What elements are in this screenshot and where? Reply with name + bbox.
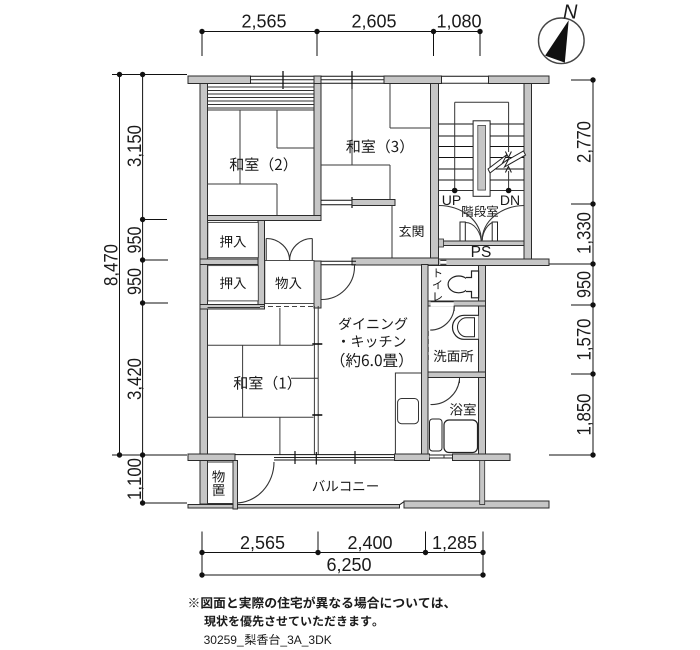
svg-text:950: 950 xyxy=(575,271,596,298)
svg-text:1,285: 1,285 xyxy=(432,533,477,553)
svg-text:3,420: 3,420 xyxy=(125,358,146,400)
svg-text:950: 950 xyxy=(125,227,146,254)
svg-text:950: 950 xyxy=(125,268,146,295)
svg-text:1,080: 1,080 xyxy=(436,12,481,32)
svg-text:2,400: 2,400 xyxy=(347,533,392,553)
svg-text:1,330: 1,330 xyxy=(575,212,596,254)
svg-text:2,565: 2,565 xyxy=(240,533,285,553)
svg-text:1,850: 1,850 xyxy=(575,394,596,436)
svg-text:8,470: 8,470 xyxy=(102,244,123,286)
svg-text:_3A_3DK: _3A_3DK xyxy=(279,633,331,647)
svg-text:2,605: 2,605 xyxy=(351,12,396,32)
svg-text:30259_: 30259_ xyxy=(204,633,244,647)
svg-text:2,770: 2,770 xyxy=(575,121,596,163)
svg-text:1,570: 1,570 xyxy=(575,319,596,361)
svg-text:N: N xyxy=(563,2,578,24)
svg-text:1,100: 1,100 xyxy=(125,458,146,500)
svg-text:3,150: 3,150 xyxy=(125,125,146,167)
svg-text:PS: PS xyxy=(471,244,492,261)
svg-text:2,565: 2,565 xyxy=(241,12,286,32)
svg-text:6,250: 6,250 xyxy=(326,555,371,575)
